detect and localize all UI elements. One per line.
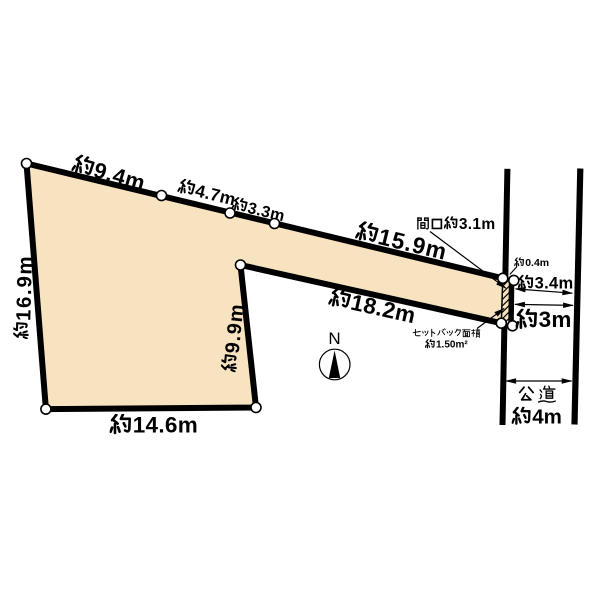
svg-text:3m: 3m <box>539 307 572 332</box>
svg-text:14.6m: 14.6m <box>133 412 198 437</box>
svg-text:N: N <box>328 329 340 348</box>
svg-text:3.4m: 3.4m <box>535 274 574 292</box>
svg-text:3.1m: 3.1m <box>459 216 496 233</box>
svg-text:16.9m: 16.9m <box>12 254 37 321</box>
svg-text:1.50m²: 1.50m² <box>436 339 468 350</box>
svg-text:0.4m: 0.4m <box>525 257 549 269</box>
svg-text:4m: 4m <box>532 406 562 429</box>
